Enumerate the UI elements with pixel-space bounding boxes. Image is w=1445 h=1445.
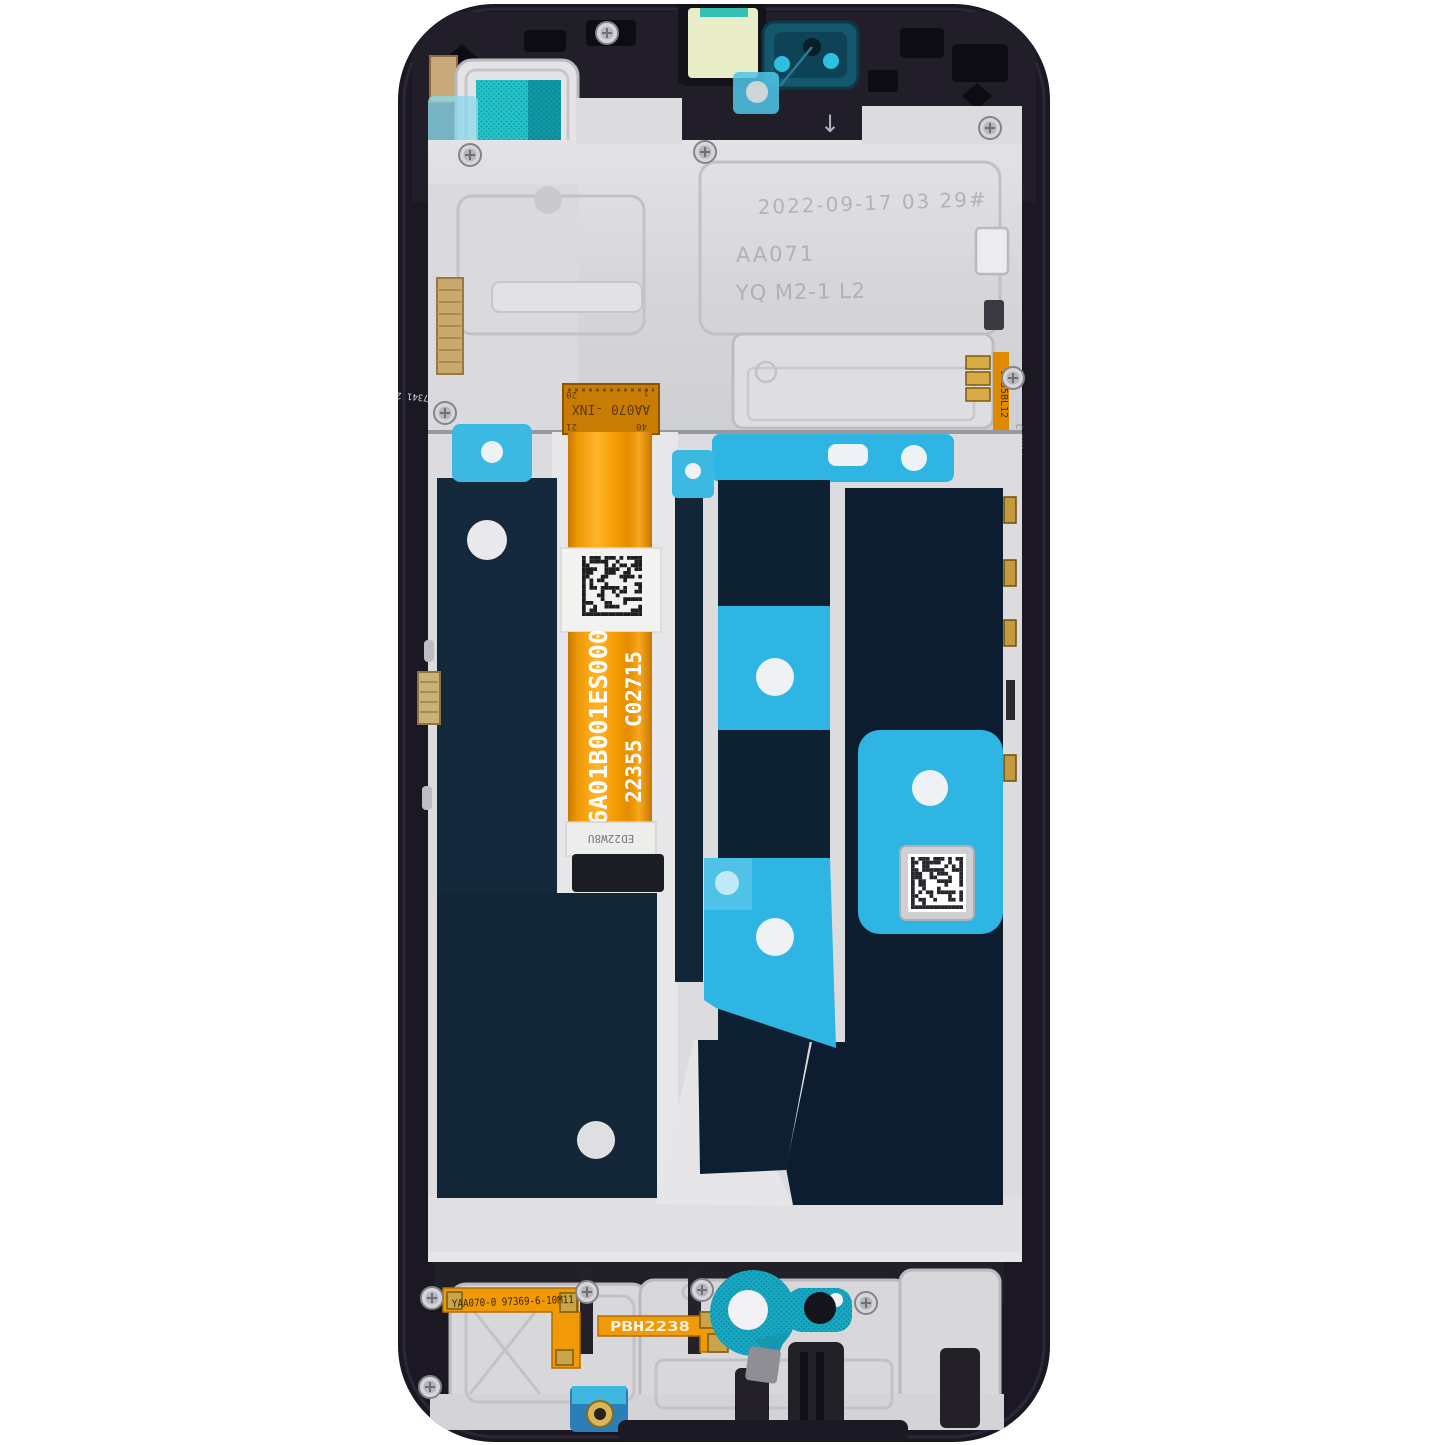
panel-hole-left [467, 520, 507, 560]
metal-bracket [745, 1346, 781, 1384]
panel-hole-bottom-left [577, 1121, 615, 1159]
flex-bottom-tab: ED22W8U [566, 822, 656, 856]
product-photo: 2022-09-17 03 29# AA071 YQ M2-1 L2 ↓ 973… [0, 0, 1445, 1445]
plate-code-line2: YQ M2-1 L2 [735, 279, 867, 305]
pin-label: 20 [566, 389, 577, 399]
flex-board-connector [572, 854, 664, 892]
flex-barcode-sticker [561, 548, 661, 632]
pin-label: 21 [566, 421, 577, 431]
flex-ribbon-upper [568, 432, 652, 550]
pin-label: 1 [644, 387, 649, 397]
main-display-flex: AA070 -INX 20 1 21 40 6A01B001ES000 2235… [561, 384, 664, 892]
flex-connector-top: AA070 -INX 20 1 21 40 [563, 384, 659, 434]
panel-thin-strip [675, 486, 703, 982]
cyan-tab-left [452, 424, 532, 482]
right-contact-pad [976, 228, 1008, 274]
cyan-adhesive-tab-top [733, 72, 779, 114]
panel-left-lower [437, 893, 657, 1198]
adhesive-strip-top [712, 434, 954, 482]
microphone-hole [804, 1292, 836, 1324]
flex-lot-code: 22355 C02715 [622, 651, 646, 803]
qr-sticker [900, 846, 974, 920]
pin-label: 40 [636, 421, 647, 431]
flex-part-number: 6A01B001ES000 [584, 629, 613, 825]
top-left-gold-pad [430, 56, 457, 102]
kapton-strip [437, 278, 463, 374]
flex-tab-code: ED22W8U [588, 832, 634, 845]
top-metal-plate: 2022-09-17 03 29# AA071 YQ M2-1 L2 ↓ [428, 98, 1022, 434]
display-backside-zone: AA070 -INX 20 1 21 40 6A01B001ES000 2235… [418, 384, 1022, 1262]
bottom-right-flex-code: PBH2238 [610, 1320, 690, 1335]
arrow-engraving: ↓ [820, 110, 840, 138]
plate-code-line1: AA071 [736, 242, 816, 267]
cyan-patch-center-upper [718, 606, 830, 730]
camera-window-teal-strip [700, 8, 748, 17]
bottom-zone: YAA070-0 97369-6-10M11 PBH2238 [428, 1252, 1022, 1442]
flex-connector-label: AA070 -INX [572, 401, 650, 416]
cyan-tab-strip [672, 450, 714, 498]
